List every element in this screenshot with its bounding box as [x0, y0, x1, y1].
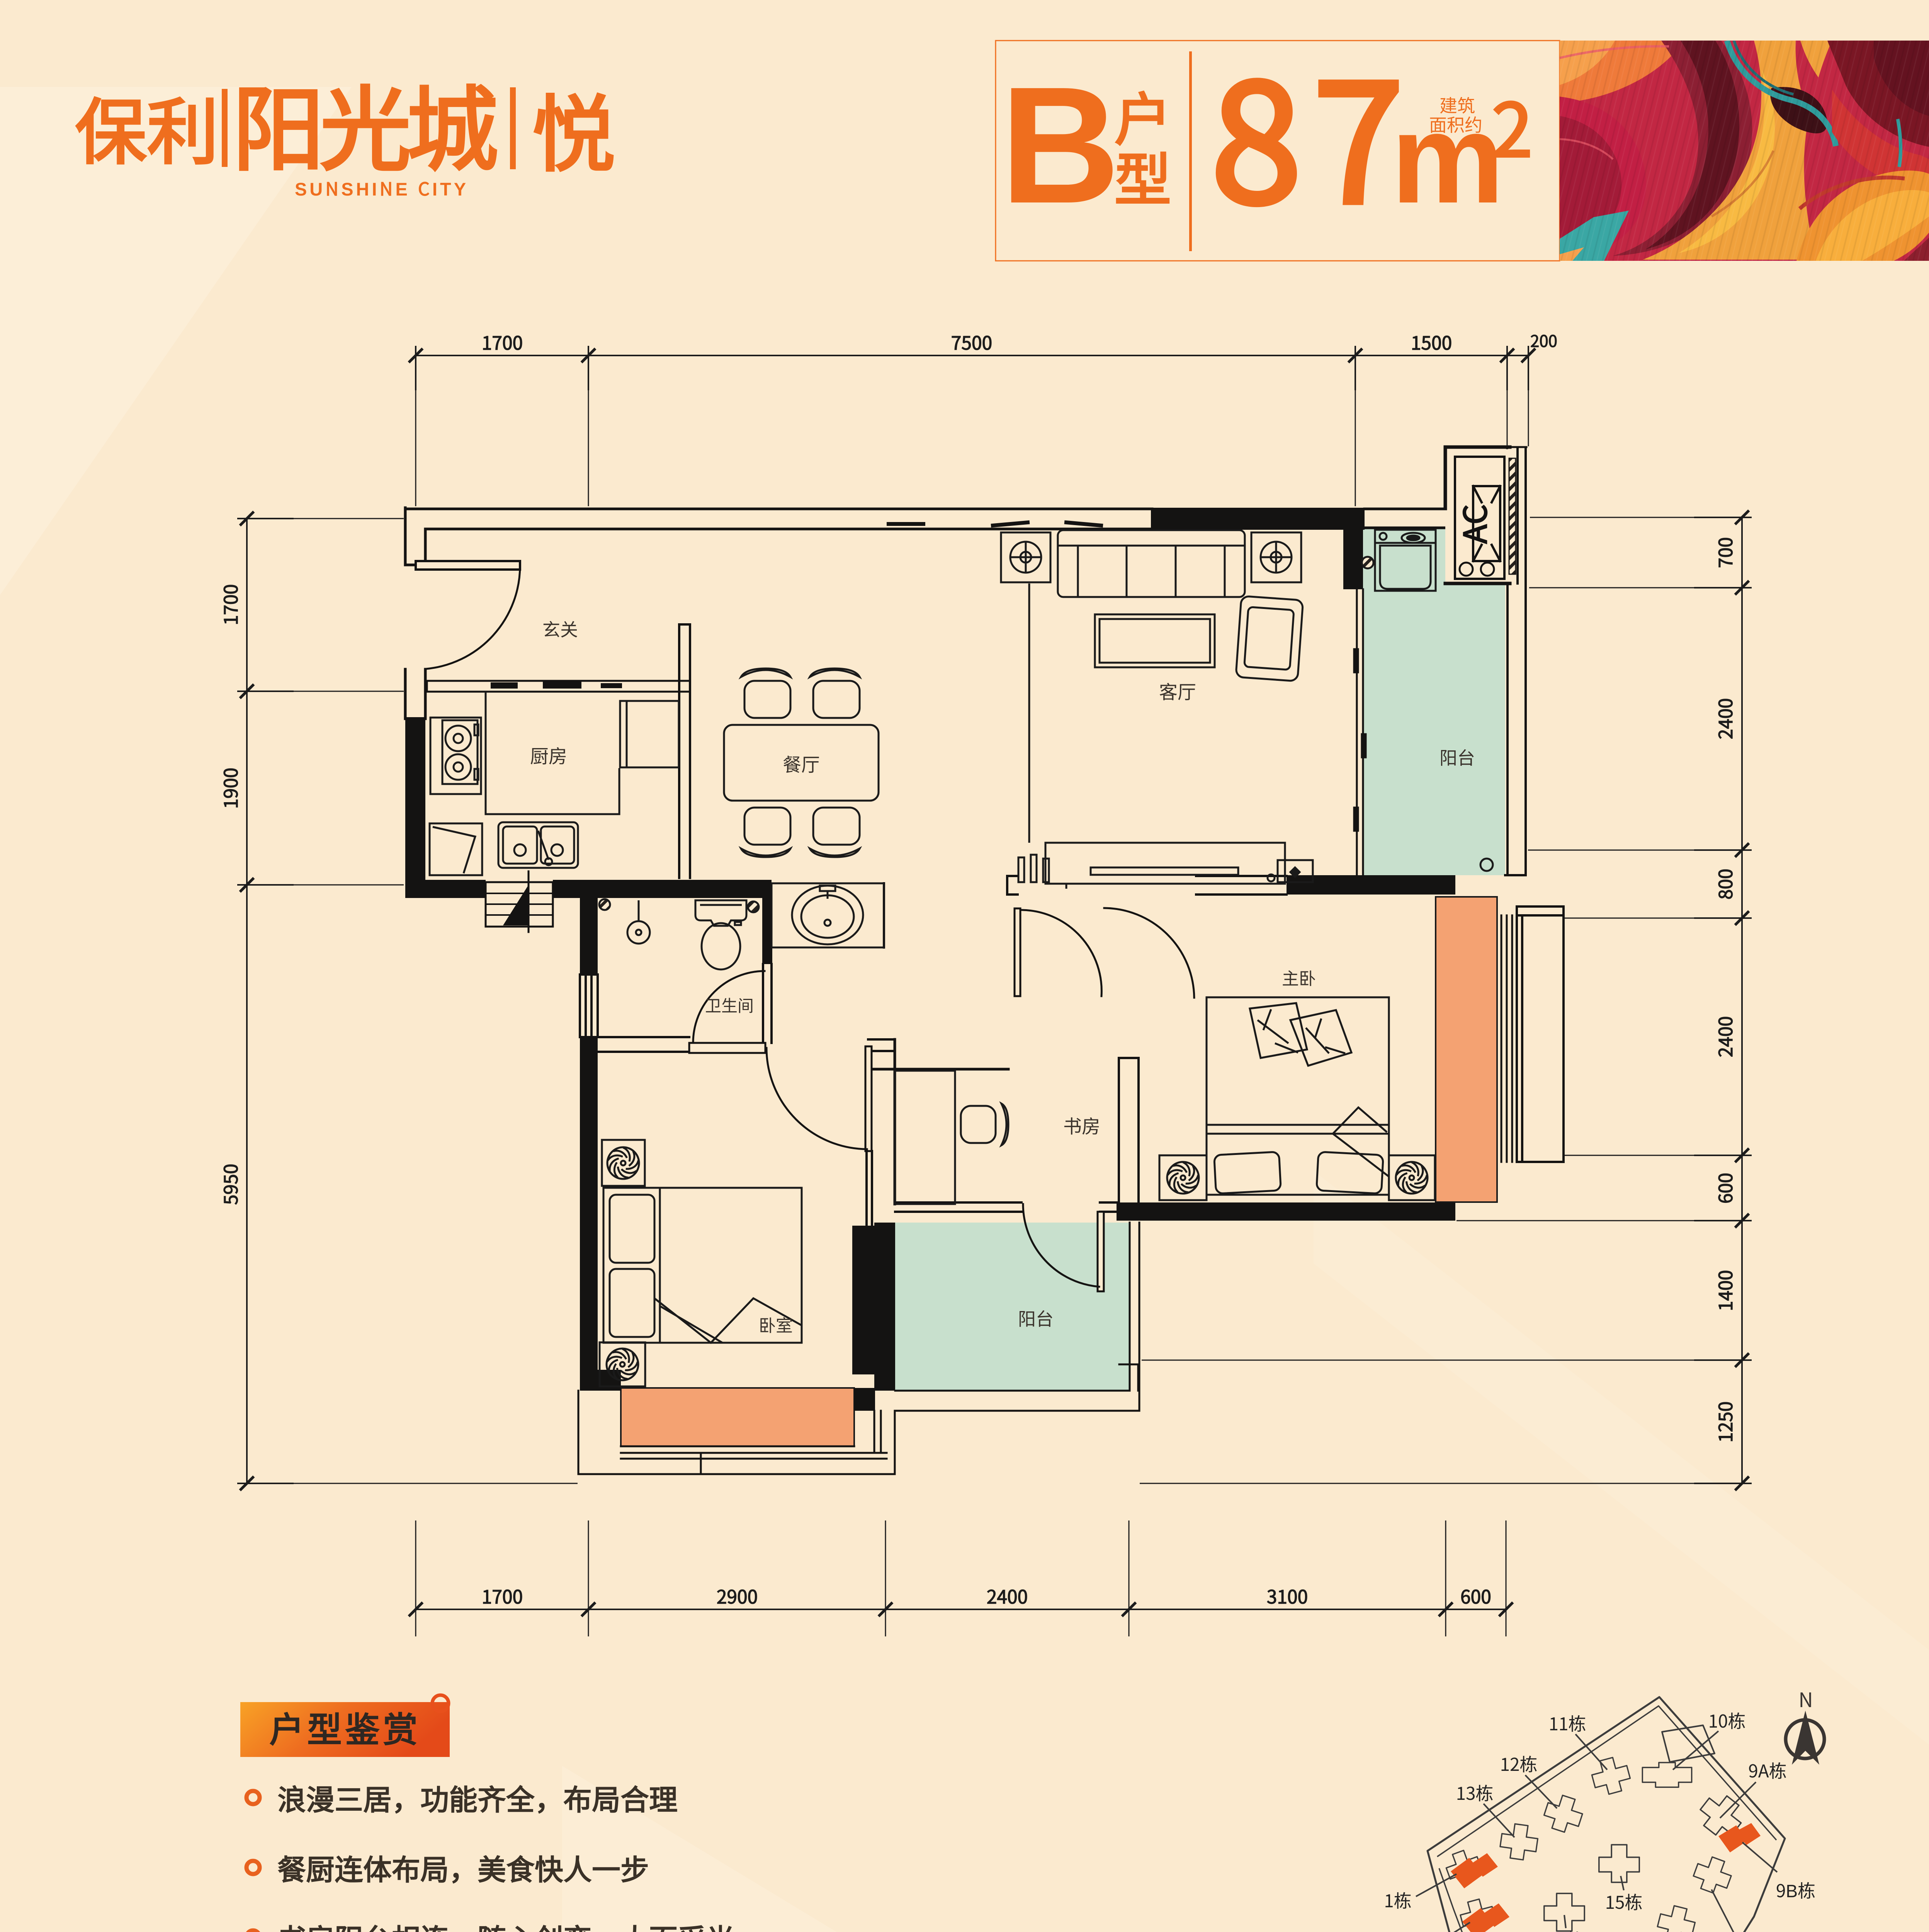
svg-text:悦: 悦 — [532, 68, 615, 188]
svg-text:2: 2 — [1492, 71, 1532, 178]
svg-text:保利: 保利 — [75, 74, 219, 179]
svg-text:11栋: 11栋 — [1548, 1710, 1586, 1736]
svg-text:13栋: 13栋 — [1456, 1780, 1493, 1805]
svg-text:800: 800 — [1711, 869, 1738, 900]
svg-text:书房阳台相连，随心创变，大面采光: 书房阳台相连，随心创变，大面采光 — [277, 1917, 735, 1932]
svg-text:12栋: 12栋 — [1500, 1751, 1537, 1776]
svg-text:700: 700 — [1711, 537, 1738, 568]
svg-text:1700: 1700 — [216, 584, 243, 626]
svg-text:户型鉴赏: 户型鉴赏 — [269, 1702, 421, 1752]
svg-text:B: B — [1000, 10, 1120, 250]
svg-text:N: N — [1798, 1684, 1813, 1713]
svg-text:浪漫三居，功能齐全，布局合理: 浪漫三居，功能齐全，布局合理 — [277, 1777, 678, 1818]
svg-text:阳光城: 阳光城 — [233, 56, 498, 189]
svg-text:1700: 1700 — [482, 1582, 523, 1609]
svg-text:5950: 5950 — [216, 1164, 243, 1205]
svg-text:餐厅: 餐厅 — [783, 750, 820, 777]
svg-text:1400: 1400 — [1711, 1270, 1738, 1311]
svg-text:1栋: 1栋 — [1384, 1887, 1412, 1913]
svg-text:600: 600 — [1711, 1173, 1738, 1204]
svg-text:阳台: 阳台 — [1440, 744, 1475, 770]
svg-text:200: 200 — [1530, 328, 1557, 352]
svg-text:9B栋: 9B栋 — [1776, 1877, 1815, 1903]
svg-text:主卧: 主卧 — [1282, 965, 1316, 990]
svg-text:7500: 7500 — [951, 328, 993, 355]
svg-text:厨房: 厨房 — [530, 741, 567, 768]
svg-text:面积约: 面积约 — [1429, 111, 1482, 137]
svg-text:1900: 1900 — [216, 768, 243, 809]
svg-text:卧室: 卧室 — [759, 1312, 793, 1337]
svg-text:玄关: 玄关 — [542, 616, 578, 641]
svg-text:3100: 3100 — [1267, 1582, 1308, 1609]
svg-text:客厅: 客厅 — [1159, 677, 1196, 704]
svg-text:书房: 书房 — [1063, 1111, 1100, 1138]
svg-text:AC: AC — [1450, 504, 1496, 544]
svg-text:1500: 1500 — [1411, 328, 1452, 355]
svg-text:餐厨连体布局，美食快人一步: 餐厨连体布局，美食快人一步 — [277, 1847, 649, 1888]
svg-text:600: 600 — [1460, 1582, 1491, 1609]
svg-text:2400: 2400 — [1711, 698, 1738, 740]
svg-text:卫生间: 卫生间 — [705, 993, 754, 1017]
svg-text:2400: 2400 — [987, 1582, 1028, 1609]
svg-text:1700: 1700 — [482, 328, 523, 355]
svg-text:14栋: 14栋 — [1547, 1927, 1584, 1932]
svg-text:1250: 1250 — [1711, 1401, 1738, 1443]
svg-text:阳台: 阳台 — [1018, 1305, 1054, 1331]
svg-text:9A栋: 9A栋 — [1748, 1757, 1787, 1783]
svg-text:SUNSHINE CITY: SUNSHINE CITY — [295, 174, 469, 201]
svg-text:10栋: 10栋 — [1708, 1708, 1745, 1733]
svg-text:型: 型 — [1114, 134, 1171, 217]
svg-text:15栋: 15栋 — [1605, 1889, 1642, 1914]
svg-text:2400: 2400 — [1711, 1016, 1738, 1058]
svg-text:m: m — [1391, 55, 1504, 240]
svg-text:2900: 2900 — [717, 1582, 758, 1609]
